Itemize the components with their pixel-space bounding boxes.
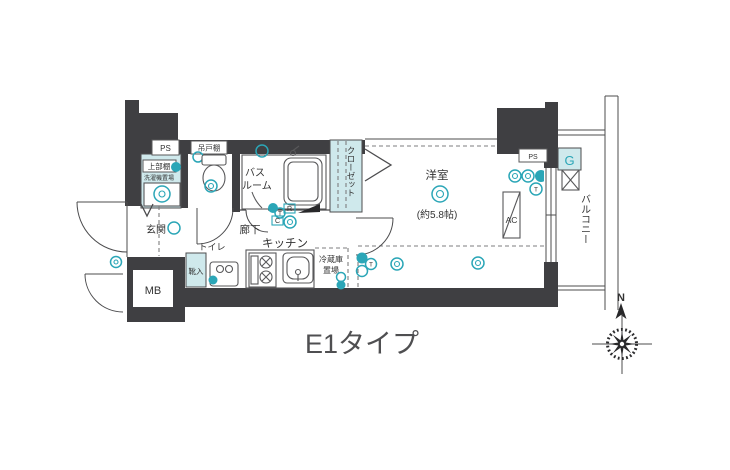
wall-top-right-block — [497, 102, 558, 154]
remocon-r-label: R — [287, 206, 292, 213]
plan-caption: E1タイプ — [305, 329, 419, 359]
north-arrow — [616, 303, 627, 319]
wall-bottom — [185, 288, 558, 307]
svg-text:T: T — [369, 262, 373, 269]
balcony-window — [544, 168, 558, 262]
meter-box-door-arc — [85, 274, 123, 312]
wall-toilet-bath — [232, 154, 240, 212]
faucet-icon — [171, 162, 181, 172]
toilet-bowl — [203, 165, 225, 191]
closet-fold-symbol — [365, 149, 391, 181]
air-con-label: AC — [506, 215, 518, 225]
toilet-door-arc — [197, 208, 233, 244]
vanity-cabinet — [209, 262, 239, 286]
shoe-cabinet-label: 靴入 — [189, 266, 204, 276]
ps-right-label: PS — [528, 154, 538, 161]
entrance-label: 玄関 — [146, 223, 166, 236]
toilet-tank — [202, 155, 226, 165]
wall-left-upper — [125, 154, 141, 206]
wall-washer-toilet — [181, 154, 188, 208]
upper-shelf-label: 上部棚 — [148, 161, 171, 171]
bath-label-line1: バス — [245, 167, 265, 179]
compass-rose — [592, 314, 652, 374]
switch-cluster: T — [509, 170, 547, 195]
closet: クローゼット — [330, 140, 391, 212]
pipe-space-left: PS — [152, 140, 179, 155]
fridge-label-line2: 置場 — [323, 265, 339, 275]
balcony: G バルコニー — [558, 148, 591, 244]
north-label: N — [617, 292, 625, 304]
sink-faucet-icon — [296, 270, 301, 275]
floorplan-svg: 上部棚 洗濯機置場 PS 吊戸棚 トイレ バス ルーム — [0, 0, 730, 470]
toilet-room: 吊戸棚 トイレ — [191, 141, 233, 252]
western-room-label: 洋室 — [426, 168, 449, 182]
svg-text:T: T — [534, 187, 538, 194]
bath-label-line2: ルーム — [242, 180, 272, 192]
controller-c-label: C — [275, 218, 280, 225]
ps-left-label: PS — [160, 144, 171, 153]
fridge-space: 冷蔵庫 置場 — [315, 248, 348, 290]
compass: N — [592, 292, 652, 374]
laundry-area: 上部棚 洗濯機置場 — [141, 154, 181, 208]
laundry-space-label: 洗濯機置場 — [144, 174, 174, 182]
pipe-space-right: PS — [519, 149, 547, 162]
western-room-size-label: (約5.8帖) — [417, 208, 458, 221]
meter-box-label: MB — [145, 285, 162, 297]
room-light-icon — [432, 186, 448, 202]
outlet-icons: T — [357, 253, 485, 277]
western-room-top-boundary — [365, 139, 497, 146]
hall-light-icon — [284, 216, 296, 228]
hanging-cupboard-label: 吊戸棚 — [198, 143, 221, 153]
water-heater-icon — [562, 170, 579, 190]
kitchen-label: キッチン — [262, 237, 308, 250]
gas-heater-label: G — [564, 153, 574, 168]
floorplan-image: 上部棚 洗濯機置場 PS 吊戸棚 トイレ バス ルーム — [0, 0, 730, 470]
western-room: 洋室 (約5.8帖) AC T T — [356, 168, 558, 288]
room-door-arc — [356, 218, 393, 255]
entrance-door-arc — [77, 202, 127, 252]
balcony-label: バルコニー — [579, 194, 591, 244]
bathtub — [284, 158, 322, 205]
switch-icon — [268, 203, 278, 213]
fridge-label-line1: 冷蔵庫 — [319, 254, 343, 264]
closet-label: クローゼット — [346, 146, 356, 197]
air-con-space: AC — [503, 192, 520, 238]
hallway-label: 廊下 — [240, 223, 261, 236]
doorbell-icon — [111, 257, 122, 268]
entrance-light-icon — [168, 222, 180, 234]
